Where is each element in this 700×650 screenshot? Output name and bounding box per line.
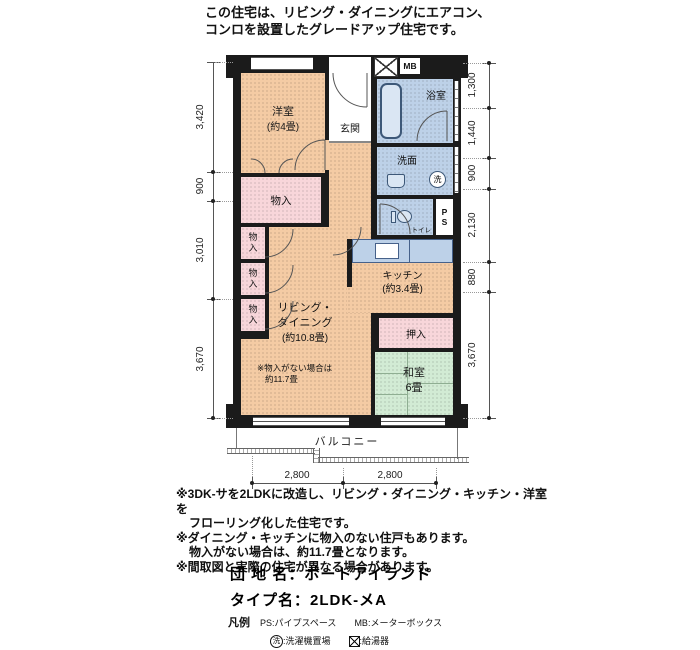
dimension-extension: [215, 201, 233, 202]
legend-ps: PS:パイプスペース: [260, 615, 336, 631]
footnote-1b: フローリング化した住宅です。: [176, 516, 556, 531]
living-size: (約10.8畳): [247, 331, 363, 346]
dimension-dot: [434, 481, 438, 485]
bath-label: 浴室: [426, 87, 446, 102]
bathtub-icon: [380, 83, 402, 139]
room-bath: 浴室: [377, 79, 453, 143]
balcony-railing: [318, 457, 469, 463]
dim-right-5: 880: [466, 255, 480, 299]
entrance-label: 玄関: [329, 120, 371, 135]
toilet-tank-icon: [391, 211, 396, 223]
dimension-extension: [215, 62, 233, 63]
dim-left-1: 3,420: [194, 95, 208, 139]
header-note-line1: この住宅は、リビング・ダイニングにエアコン、: [205, 4, 535, 21]
room-toilet: トイレ: [377, 199, 433, 235]
estate-name-line: 団 地 名：ポートアイランド: [230, 562, 432, 588]
western-room-size: (約4畳): [241, 120, 325, 135]
sink-icon: [387, 174, 405, 188]
kitchen-sink-icon: [375, 243, 399, 259]
kitchen-size: (約3.4畳): [352, 283, 453, 296]
washroom-window: [454, 147, 459, 193]
dimension-line-right: [489, 63, 490, 418]
dim-right-4: 2,130: [466, 203, 480, 247]
dimension-dot: [487, 416, 491, 420]
dimension-dot: [487, 61, 491, 65]
room-washroom: 洗面 洗: [377, 147, 453, 195]
estate-name-value: ポートアイランド: [304, 566, 431, 583]
room-entrance: 玄関: [329, 57, 371, 143]
dimension-dot: [341, 481, 345, 485]
dimension-extension: [215, 299, 233, 300]
washroom-label: 洗面: [397, 152, 417, 167]
type-name-line: タイプ名：2LDK-メA: [230, 588, 432, 614]
closet-oshiire: 押入: [379, 318, 453, 348]
closet-large: 物入: [241, 177, 321, 223]
legend-row-1: 凡例 PS:パイプスペース MB:メーターボックス: [228, 615, 442, 631]
balcony-door-living: [253, 417, 349, 426]
dimension-dot: [250, 481, 254, 485]
legend-heater: :給湯器: [360, 633, 390, 649]
bath-window: [454, 81, 459, 141]
living-name2: ダイニング: [247, 316, 363, 331]
legend: 凡例 PS:パイプスペース MB:メーターボックス 洗 :洗濯機置場 :給湯器: [228, 615, 442, 649]
dimension-dot: [487, 187, 491, 191]
meter-box: MB: [400, 58, 420, 74]
pipe-space: P S: [436, 199, 453, 235]
dimension-extension: [463, 108, 487, 109]
dim-left-4: 3,670: [194, 337, 208, 381]
balcony-side-line: [457, 428, 458, 459]
living-note2: 約11.7畳: [257, 374, 367, 385]
kitchen-name: キッチン: [352, 270, 453, 283]
western-room-name: 洋室: [241, 105, 325, 120]
japanese-room-name: 和室: [375, 366, 453, 381]
western-room-window: [251, 57, 313, 70]
toilet-label: トイレ: [412, 224, 432, 234]
kitchen-counter: [352, 239, 453, 263]
footnote-2: ※ダイニング・キッチンに物入のない住戸もあります。: [176, 531, 556, 546]
header-note: この住宅は、リビング・ダイニングにエアコン、 コンロを設置したグレードアップ住宅…: [205, 4, 535, 38]
dimension-extension: [215, 418, 233, 419]
living-note1: ※物入がない場合は: [257, 363, 367, 374]
balcony-label: バルコニー: [233, 433, 461, 449]
header-note-line2: コンロを設置したグレードアップ住宅です。: [205, 21, 535, 38]
closet-small-2-label: 物入: [248, 263, 259, 290]
counter-divider: [409, 240, 410, 262]
dimension-dot: [487, 260, 491, 264]
dimension-extension: [463, 418, 487, 419]
balcony-side-line: [236, 428, 237, 449]
room-japanese: 和室 6畳: [375, 352, 453, 415]
toilet-bowl-icon: [397, 210, 412, 223]
floorplan-page: この住宅は、リビング・ダイニングにエアコン、 コンロを設置したグレードアップ住宅…: [0, 0, 700, 650]
legend-row-2: 洗 :洗濯機置場 :給湯器: [270, 633, 442, 649]
closet-small-1: 物入: [241, 227, 265, 259]
dim-bottom-2: 2,800: [355, 469, 425, 482]
estate-name-label: 団 地 名：: [230, 566, 304, 583]
living-note: ※物入がない場合は 約11.7畳: [257, 363, 367, 385]
wall-corner-block: [448, 55, 468, 78]
title-block: 団 地 名：ポートアイランド タイプ名：2LDK-メA: [230, 562, 432, 614]
laundry-circle-icon: 洗: [270, 635, 283, 648]
dimension-dot: [487, 106, 491, 110]
hallway: [329, 143, 371, 227]
dim-left-2: 900: [194, 164, 208, 208]
dim-right-1: 1,300: [466, 63, 480, 107]
living-dining-label: リビング・ ダイニング (約10.8畳): [247, 301, 363, 346]
living-name1: リビング・: [247, 301, 363, 316]
dimension-dot: [487, 156, 491, 160]
closet-small-1-label: 物入: [248, 227, 259, 254]
closet-small-2: 物入: [241, 263, 265, 295]
dim-right-3: 900: [466, 151, 480, 195]
floor-plan: 洋室 (約4畳) 玄関 MB 浴室 洗面 洗 トイレ: [233, 55, 461, 428]
water-heater-icon: [374, 57, 398, 77]
pipe-space-s: S: [436, 217, 453, 227]
dim-left-3: 3,010: [194, 228, 208, 272]
legend-laundry: :洗濯機置場: [283, 633, 331, 649]
dimension-dot: [487, 290, 491, 294]
balcony-door-japanese: [381, 417, 445, 426]
footnote-1: ※3DK-サを2LDKに改造し、リビング・ダイニング・キッチン・洋室を: [176, 487, 556, 516]
dim-right-2: 1,440: [466, 111, 480, 155]
kitchen-label: キッチン (約3.4畳): [352, 270, 453, 296]
balcony-railing: [227, 448, 315, 454]
dimension-line-left: [213, 62, 214, 419]
footnote-2b: 物入がない場合は、約11.7畳となります。: [176, 545, 556, 560]
dim-right-6: 3,670: [466, 333, 480, 377]
dimension-extension: [215, 172, 233, 173]
legend-mb: MB:メーターボックス: [354, 615, 442, 631]
japanese-room-size: 6畳: [375, 381, 453, 396]
type-name-value: 2LDK-メA: [310, 592, 387, 609]
water-heater-icon: [349, 636, 360, 647]
pipe-space-p: P: [436, 207, 453, 217]
dim-bottom-1: 2,800: [262, 469, 332, 482]
legend-heading: 凡例: [228, 615, 250, 631]
washing-machine-icon: 洗: [429, 171, 446, 188]
type-name-label: タイプ名：: [230, 592, 310, 609]
room-western: 洋室 (約4畳): [241, 73, 325, 173]
